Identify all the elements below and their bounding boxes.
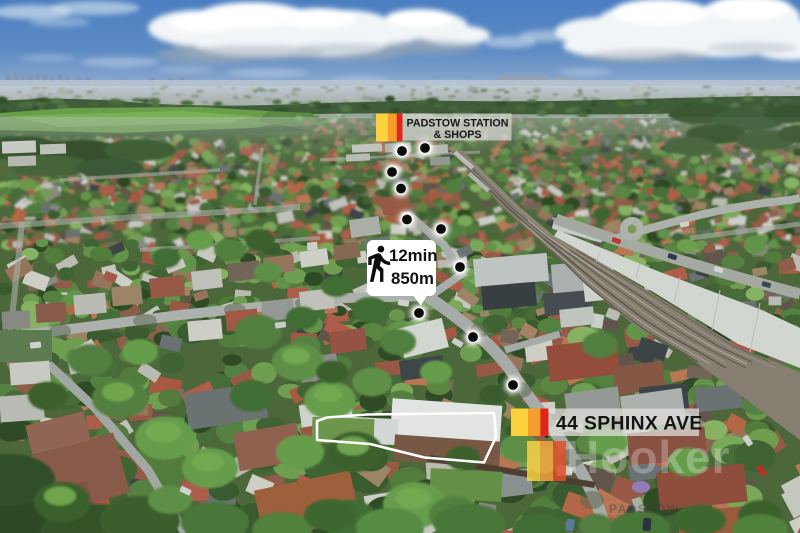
svg-text:Hooker: Hooker: [566, 431, 730, 483]
svg-text:12min: 12min: [389, 246, 438, 265]
svg-text:PADSTOW: PADSTOW: [609, 502, 680, 516]
svg-text:& SHOPS: & SHOPS: [433, 129, 481, 141]
svg-text:PADSTOW STATION: PADSTOW STATION: [407, 118, 509, 130]
svg-text:850m: 850m: [391, 269, 434, 288]
